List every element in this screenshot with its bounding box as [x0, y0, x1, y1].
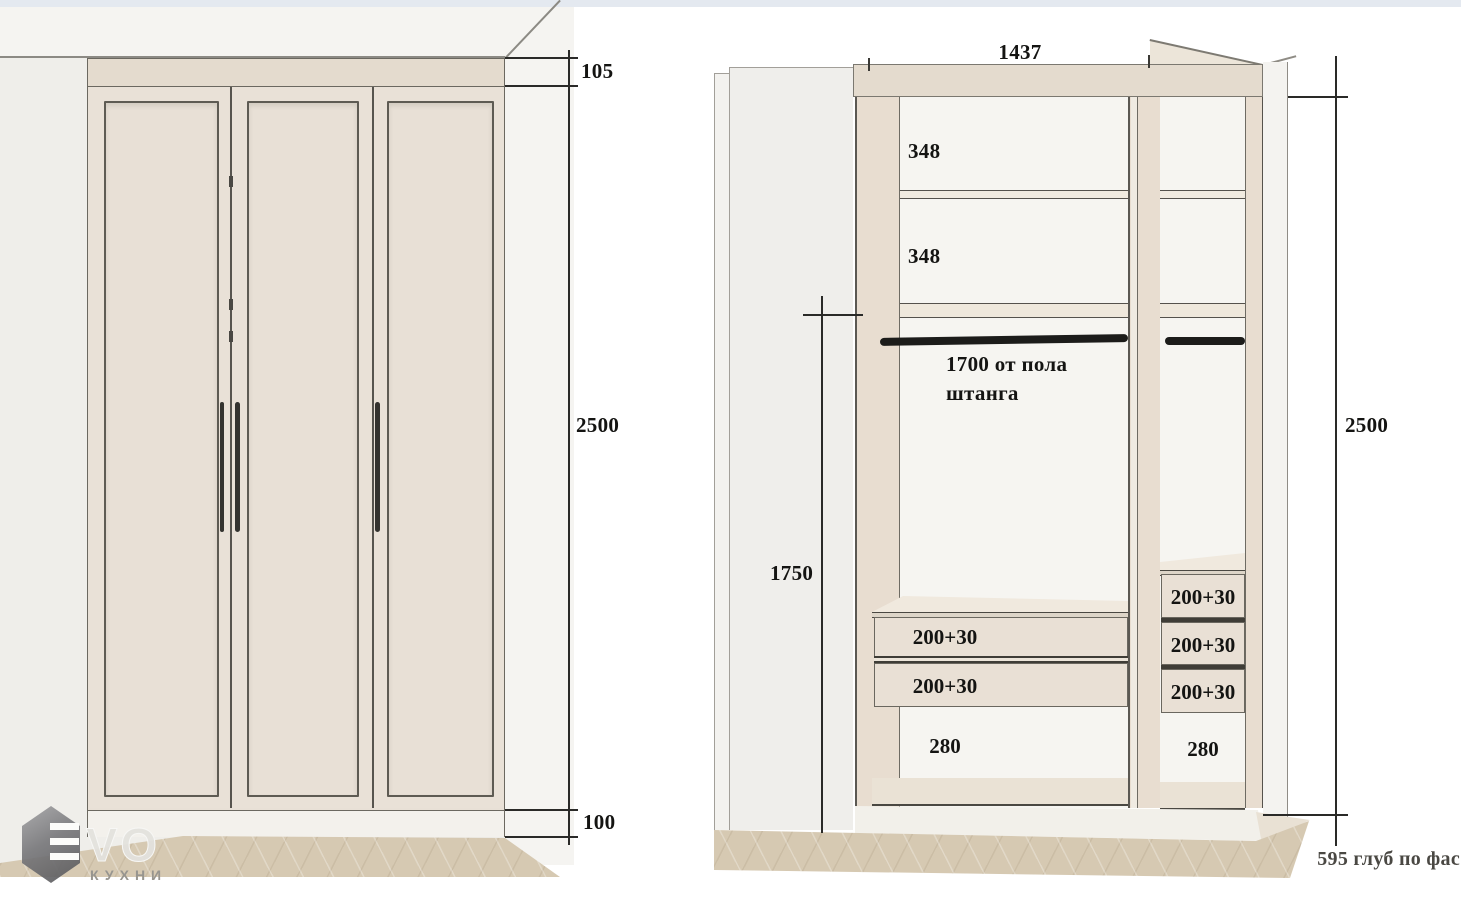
wall-edge-strip: [714, 73, 729, 830]
door-right-panel: [387, 101, 494, 797]
evo-logo: VO КУХНИ: [0, 795, 400, 890]
dim-line-1750: [821, 296, 823, 833]
door-handle-1: [220, 402, 225, 532]
door-hinge-2: [229, 299, 233, 310]
shelf-gap-label-1: 348: [908, 139, 940, 164]
drawer-left-1-label: 200+30: [880, 625, 1010, 650]
dim-tick-2500-bottom: [1263, 814, 1348, 816]
top-band-open: [853, 64, 1263, 97]
depth-note-label: 595 глуб по фас: [1240, 848, 1460, 871]
door-middle-panel: [247, 101, 359, 797]
dim-tick-1750: [803, 314, 863, 316]
evo-subtitle: КУХНИ: [90, 867, 167, 883]
dim-tick-100-top: [505, 809, 578, 811]
evo-e-bar-3: [50, 853, 79, 860]
dim-label-105: 105: [581, 59, 613, 84]
wall-panel-right-view: [729, 67, 853, 830]
rod-note-line2: штанга: [946, 381, 1019, 406]
dim-tick-1437-right: [1148, 55, 1150, 68]
dim-line-left-vertical: [568, 50, 570, 845]
drawer-left-2-label: 200+30: [880, 674, 1010, 699]
dim-label-1750: 1750: [770, 561, 813, 586]
dim-tick-1437-left: [868, 58, 870, 71]
door-handle-3: [375, 402, 380, 532]
door-handle-2: [235, 402, 240, 532]
drawer-right-2-label: 200+30: [1161, 633, 1245, 658]
shelf-left-1: [900, 190, 1128, 199]
hanging-rod-right: [1165, 337, 1245, 345]
shelf-left-2: [900, 303, 1128, 318]
rod-note-line1: 1700 от пола: [946, 352, 1067, 377]
dim-tick-2500-top: [1288, 96, 1348, 98]
dim-label-100: 100: [583, 810, 615, 835]
door-hinge-1: [229, 176, 233, 187]
cabinet-bottom-left: [872, 778, 1128, 806]
shelf-right-2: [1160, 303, 1245, 318]
bottom-gap-left-label: 280: [880, 734, 1010, 759]
dim-tick-100-bottom: [505, 836, 578, 838]
interior-right-side-panel: [1245, 97, 1263, 808]
door-hinge-3: [229, 331, 233, 342]
cabinet-bottom-right: [1160, 782, 1245, 810]
dim-tick-105-bottom: [505, 85, 578, 87]
drawer-right-3-label: 200+30: [1161, 680, 1245, 705]
divider-front-edge: [1131, 97, 1138, 808]
evo-wordmark: VO: [86, 817, 160, 872]
dim-label-2500-left: 2500: [576, 413, 619, 438]
door-left-panel: [104, 101, 219, 797]
evo-e-bar-1: [50, 823, 79, 830]
shelf-right-1: [1160, 190, 1245, 199]
top-filler-panel: [88, 59, 504, 87]
dim-line-2500-right: [1335, 56, 1337, 846]
shelf-gap-label-2: 348: [908, 244, 940, 269]
bottom-gap-right-label: 280: [1161, 737, 1245, 762]
right-side-outer-panel: [1263, 62, 1288, 828]
dim-tick-105-top: [505, 57, 578, 59]
drawer-rail-left: [874, 656, 1128, 663]
dim-label-1437: 1437: [955, 40, 1085, 65]
dim-label-2500-right: 2500: [1345, 413, 1388, 438]
drawer-right-1-label: 200+30: [1161, 585, 1245, 610]
evo-e-bar-2: [50, 838, 79, 845]
wardrobe-drawing: 105 2500 100 VO КУХНИ 1437 348 348 1700 …: [0, 0, 1461, 900]
top-border-strip: [0, 0, 1461, 7]
